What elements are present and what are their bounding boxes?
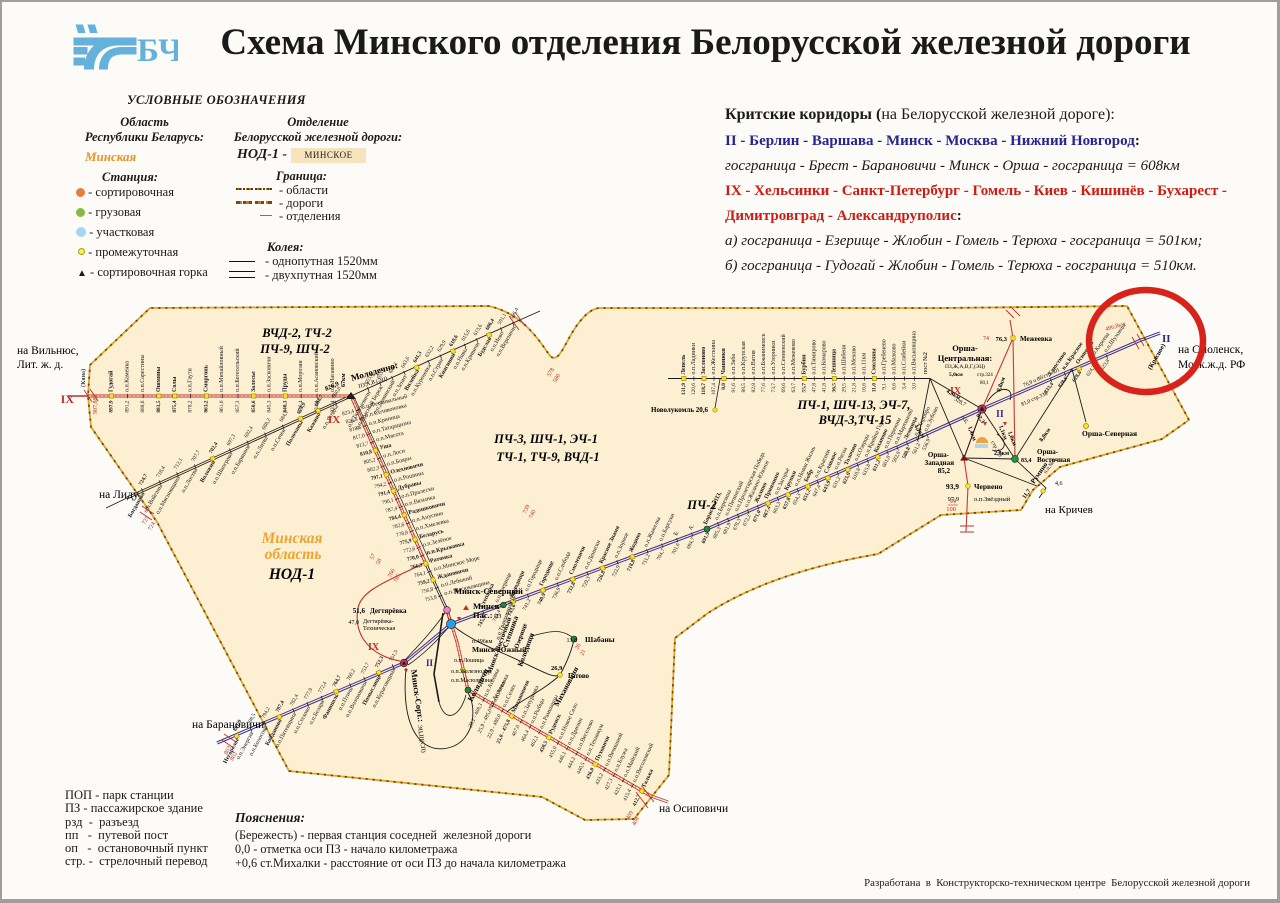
svg-text:п.496км: п.496км <box>472 639 493 645</box>
svg-text:Пруды: Пруды <box>282 373 288 392</box>
svg-text:9,1: 9,1 <box>882 383 888 390</box>
svg-text:883,5: 883,5 <box>156 400 162 412</box>
svg-text:Техническая: Техническая <box>363 626 395 632</box>
svg-text:13,8: 13,8 <box>567 638 578 644</box>
svg-text:о.п.Мехово: о.п.Мехово <box>851 346 857 375</box>
svg-text:875,4: 875,4 <box>172 400 178 412</box>
svg-text:о.п.Асановский: о.п.Асановский <box>313 351 320 392</box>
svg-text:Межеевка: Межеевка <box>1020 335 1053 343</box>
svg-text:Дегтярёвка-: Дегтярёвка- <box>363 619 394 625</box>
svg-text:о.п.Заба: о.п.Заба <box>730 354 737 375</box>
svg-text:на Смоленск,: на Смоленск, <box>1178 344 1243 356</box>
svg-text:о.п.Сарестины: о.п.Сарестины <box>140 355 146 392</box>
svg-text:Моск.ж.д. РФ: Моск.ж.д. РФ <box>1178 359 1245 371</box>
svg-text:о.п.Засковичи: о.п.Засковичи <box>267 356 273 392</box>
svg-text:ПЧ-2: ПЧ-2 <box>686 498 717 512</box>
svg-text:ПЗ: ПЗ <box>494 614 501 620</box>
svg-text:о.п.Комарово: о.п.Комарово <box>821 340 827 374</box>
svg-text:88,5: 88,5 <box>741 383 747 393</box>
svg-text:IX: IX <box>368 642 380 653</box>
svg-text:82,8: 82,8 <box>751 383 757 393</box>
svg-text:ПЧ-1, ШЧ-13, ЭЧ-7,: ПЧ-1, ШЧ-13, ЭЧ-7, <box>796 398 910 412</box>
svg-text:о.п.Васьковщина: о.п.Васьковщина <box>912 331 918 375</box>
svg-text:Лешница: Лешница <box>831 349 837 375</box>
svg-text:область: область <box>265 546 322 563</box>
svg-text:о.п.Каменка: о.п.Каменка <box>124 361 130 392</box>
svg-text:863,2: 863,2 <box>203 400 209 412</box>
svg-text:ПЧ-3, ШЧ-1, ЭЧ-1: ПЧ-3, ШЧ-1, ЭЧ-1 <box>493 432 598 446</box>
svg-text:о.п.Михайловный: о.п.Михайловный <box>218 345 225 392</box>
svg-text:76,3: 76,3 <box>996 336 1008 343</box>
svg-text:Западная: Западная <box>925 459 955 467</box>
svg-text:о.п.Бегесельский: о.п.Бегесельский <box>234 348 241 392</box>
svg-text:16,6: 16,6 <box>861 383 867 393</box>
svg-text:Новолукомль 20,6: Новолукомль 20,6 <box>651 406 709 414</box>
svg-text:51,6: 51,6 <box>353 607 366 615</box>
svg-text:о.п.Межевово: о.п.Межевово <box>791 339 797 374</box>
svg-text:69,6: 69,6 <box>781 383 787 393</box>
svg-text:о.п.Жесткина: о.п.Жесткина <box>711 340 717 375</box>
svg-text:93,9: 93,9 <box>946 482 959 491</box>
svg-text:стр.324: стр.324 <box>977 373 993 378</box>
svg-text:о.п.Лошица: о.п.Лошица <box>454 658 484 664</box>
svg-text:74: 74 <box>983 336 989 342</box>
svg-text:Орша-: Орша- <box>952 343 978 353</box>
svg-text:73,7: 73,7 <box>771 383 777 393</box>
svg-text:Ошмяны: Ошмяны <box>156 366 162 392</box>
svg-text:о.п.Сенненский: о.п.Сенненский <box>780 333 787 374</box>
svg-text:85,2: 85,2 <box>938 467 951 475</box>
svg-text:55,7: 55,7 <box>801 383 807 393</box>
svg-text:80,1: 80,1 <box>980 381 989 386</box>
svg-text:724: 724 <box>147 521 157 532</box>
svg-text:Залесье: Залесье <box>251 371 257 392</box>
svg-text:0,0: 0,0 <box>721 383 727 390</box>
svg-text:о.п.Ладники: о.п.Ладники <box>691 342 697 374</box>
svg-text:26,9: 26,9 <box>551 665 563 672</box>
svg-text:о.п.Бжанимовск: о.п.Бжанимовск <box>761 333 767 374</box>
svg-text:907,886: 907,886 <box>93 395 99 415</box>
svg-text:Орша-: Орша- <box>1037 448 1059 456</box>
svg-text:на Лиду: на Лиду <box>99 489 139 501</box>
svg-text:на Барановичи: на Барановичи <box>192 719 264 731</box>
svg-text:о.п.Крупская: о.п.Крупская <box>741 341 747 374</box>
svg-text:Минская: Минская <box>260 530 322 547</box>
svg-text:о.п.Шабени: о.п.Шабени <box>840 344 847 375</box>
svg-text:77,6: 77,6 <box>761 383 767 393</box>
svg-text:91,6: 91,6 <box>731 383 737 393</box>
svg-text:47,0: 47,0 <box>349 620 360 626</box>
svg-text:ВЧД-2, ТЧ-2: ВЧД-2, ТЧ-2 <box>261 326 332 340</box>
svg-text:II: II <box>1162 333 1171 345</box>
svg-text:11,0: 11,0 <box>871 383 877 392</box>
svg-text:120,6: 120,6 <box>691 383 697 395</box>
svg-text:Лит. ж. д.: Лит. ж. д. <box>17 359 63 371</box>
svg-text:Чашники: Чашники <box>721 348 727 375</box>
svg-text:36,5: 36,5 <box>831 383 837 393</box>
svg-text:857,3: 857,3 <box>235 400 241 412</box>
svg-text:63,7: 63,7 <box>791 383 797 393</box>
svg-text:II: II <box>426 658 434 668</box>
svg-text:о.п.11км: о.п.11км <box>861 353 867 375</box>
svg-text:о.п.Ватня: о.п.Ватня <box>751 350 757 375</box>
svg-text:II: II <box>996 409 1004 420</box>
svg-text:Центральная:: Центральная: <box>938 353 993 363</box>
svg-text:100: 100 <box>946 506 956 513</box>
svg-text:на Вильнюс,: на Вильнюс, <box>17 345 79 357</box>
svg-text:6,6: 6,6 <box>892 383 898 390</box>
svg-text:Пас.:: Пас.: <box>473 610 493 620</box>
svg-text:Солы: Солы <box>172 376 178 392</box>
svg-text:891,2: 891,2 <box>124 400 130 412</box>
svg-text:пост №2: пост №2 <box>923 352 929 374</box>
svg-text:IX: IX <box>328 414 340 426</box>
svg-text:о.п.Звёздный: о.п.Звёздный <box>974 496 1011 503</box>
svg-text:(Кяна): (Кяна) <box>80 369 87 387</box>
svg-text:о.п.Мазково: о.п.Мазково <box>892 344 898 375</box>
svg-text:29,5: 29,5 <box>841 383 847 393</box>
svg-text:Червено: Червено <box>974 482 1003 491</box>
svg-text:о.п.Узорники: о.п.Узорники <box>771 340 777 375</box>
svg-text:Дегтярёвка: Дегтярёвка <box>370 607 407 615</box>
svg-text:861,0: 861,0 <box>219 400 225 412</box>
svg-text:850,6: 850,6 <box>251 400 257 412</box>
svg-text:о.п.Гребенево: о.п.Гребенево <box>881 339 888 374</box>
svg-text:НОД-1: НОД-1 <box>268 566 315 583</box>
svg-text:Орша-: Орша- <box>928 451 950 459</box>
svg-text:Сморгонь: Сморгонь <box>203 364 209 392</box>
svg-text:41,8: 41,8 <box>821 383 827 393</box>
svg-text:Заслоново: Заслоново <box>701 347 707 375</box>
svg-text:47,8: 47,8 <box>811 383 817 393</box>
svg-text:107,4: 107,4 <box>711 383 717 395</box>
svg-text:67км: 67км <box>341 373 347 387</box>
svg-text:на Кричев: на Кричев <box>1045 504 1093 516</box>
svg-text:131,9: 131,9 <box>681 383 687 395</box>
svg-text:о.п.Тимирово: о.п.Тимирово <box>811 340 817 375</box>
svg-text:888,6: 888,6 <box>140 400 146 412</box>
svg-text:99: 99 <box>950 498 957 505</box>
svg-text:ПЧ-9, ШЧ-2: ПЧ-9, ШЧ-2 <box>259 342 330 356</box>
svg-text:о.п.Слабейки: о.п.Слабейки <box>901 340 908 375</box>
svg-text:Бурбин: Бурбин <box>800 354 807 375</box>
svg-text:о.п.Гаути: о.п.Гаути <box>188 367 194 392</box>
svg-text:IX: IX <box>61 392 75 406</box>
svg-text:845,3: 845,3 <box>267 400 273 412</box>
svg-text:118,7: 118,7 <box>701 383 707 395</box>
svg-text:ТЧ-1, ТЧ-9, ВЧД-1: ТЧ-1, ТЧ-9, ВЧД-1 <box>496 450 599 464</box>
svg-text:3,0: 3,0 <box>912 383 918 390</box>
svg-text:на Осиповичи: на Осиповичи <box>659 803 728 815</box>
svg-text:Гудогай: Гудогай <box>108 370 115 392</box>
svg-text:4,6: 4,6 <box>1055 481 1063 487</box>
svg-text:Орша-Северная: Орша-Северная <box>1082 429 1137 438</box>
svg-text:о.п.Морозаи: о.п.Морозаи <box>298 360 304 392</box>
svg-text:21,8: 21,8 <box>851 383 857 393</box>
svg-text:ПЗ,Ж,А,В,Г,(ЭЦ): ПЗ,Ж,А,В,Г,(ЭЦ) <box>945 363 985 370</box>
svg-text:897,9: 897,9 <box>109 400 115 412</box>
svg-text:3,4: 3,4 <box>902 383 908 390</box>
svg-text:Шабаны: Шабаны <box>585 635 615 644</box>
svg-text:Лепель: Лепель <box>681 354 687 375</box>
svg-text:Смоляны: Смоляны <box>871 348 877 374</box>
svg-text:83,4: 83,4 <box>1021 458 1032 464</box>
svg-text:ВЧД-3,ТЧ-15: ВЧД-3,ТЧ-15 <box>818 413 892 427</box>
svg-text:878,2: 878,2 <box>188 400 194 412</box>
svg-text:5,0км: 5,0км <box>949 372 963 378</box>
